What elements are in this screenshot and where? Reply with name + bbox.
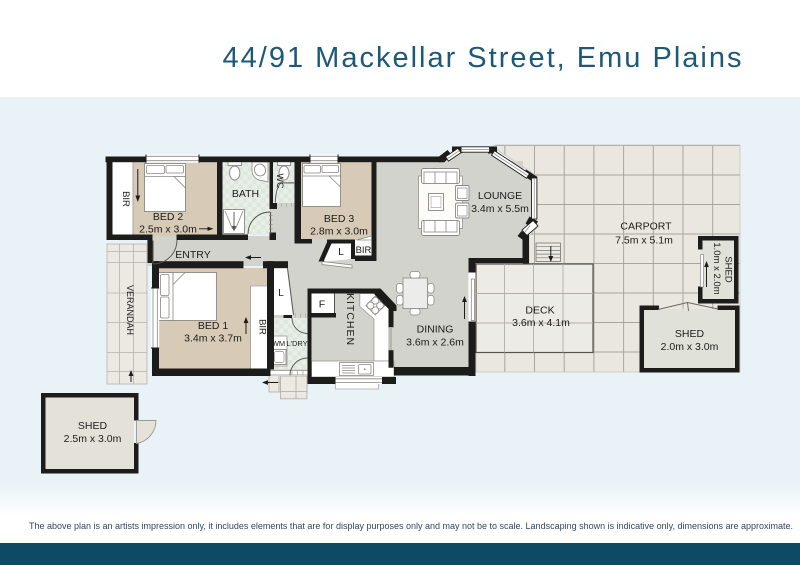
svg-text:3.6m x 2.6m: 3.6m x 2.6m [406, 337, 464, 349]
svg-text:BED 2: BED 2 [153, 211, 184, 223]
svg-text:CARPORT: CARPORT [620, 221, 672, 233]
svg-text:2.8m x 3.0m: 2.8m x 3.0m [310, 226, 368, 238]
svg-text:BED 3: BED 3 [324, 213, 355, 225]
svg-text:2.5m x 3.0m: 2.5m x 3.0m [64, 433, 122, 445]
svg-text:3.6m x 4.1m: 3.6m x 4.1m [512, 317, 570, 329]
svg-text:BIR: BIR [120, 191, 131, 207]
svg-text:SHED: SHED [78, 420, 108, 432]
svg-text:LOUNGE: LOUNGE [478, 190, 522, 202]
svg-text:WC: WC [275, 174, 285, 189]
svg-text:BIR: BIR [257, 319, 268, 335]
svg-text:ENTRY: ENTRY [175, 249, 210, 261]
svg-text:7.5m x 5.1m: 7.5m x 5.1m [615, 235, 673, 247]
svg-text:SHED: SHED [723, 256, 734, 283]
svg-text:L'DRY: L'DRY [286, 339, 307, 348]
svg-text:VERANDAH: VERANDAH [125, 285, 135, 335]
svg-text:1.0m x 2.0m: 1.0m x 2.0m [711, 242, 722, 294]
svg-text:BED 1: BED 1 [198, 320, 229, 332]
svg-text:DINING: DINING [417, 324, 454, 336]
svg-text:3.4m x 5.5m: 3.4m x 5.5m [471, 203, 529, 215]
svg-text:KITCHEN: KITCHEN [344, 293, 356, 346]
svg-text:DECK: DECK [525, 305, 554, 317]
svg-text:2.0m x 3.0m: 2.0m x 3.0m [661, 341, 719, 353]
svg-text:BATH: BATH [232, 188, 259, 200]
svg-text:L: L [278, 288, 284, 299]
svg-text:BIR: BIR [356, 245, 372, 256]
svg-text:F: F [319, 299, 325, 311]
svg-text:SHED: SHED [675, 328, 705, 340]
svg-text:3.4m x 3.7m: 3.4m x 3.7m [184, 333, 242, 345]
svg-text:WM: WM [272, 339, 285, 348]
svg-text:2.5m x 3.0m: 2.5m x 3.0m [139, 224, 197, 236]
svg-text:L: L [338, 247, 344, 258]
